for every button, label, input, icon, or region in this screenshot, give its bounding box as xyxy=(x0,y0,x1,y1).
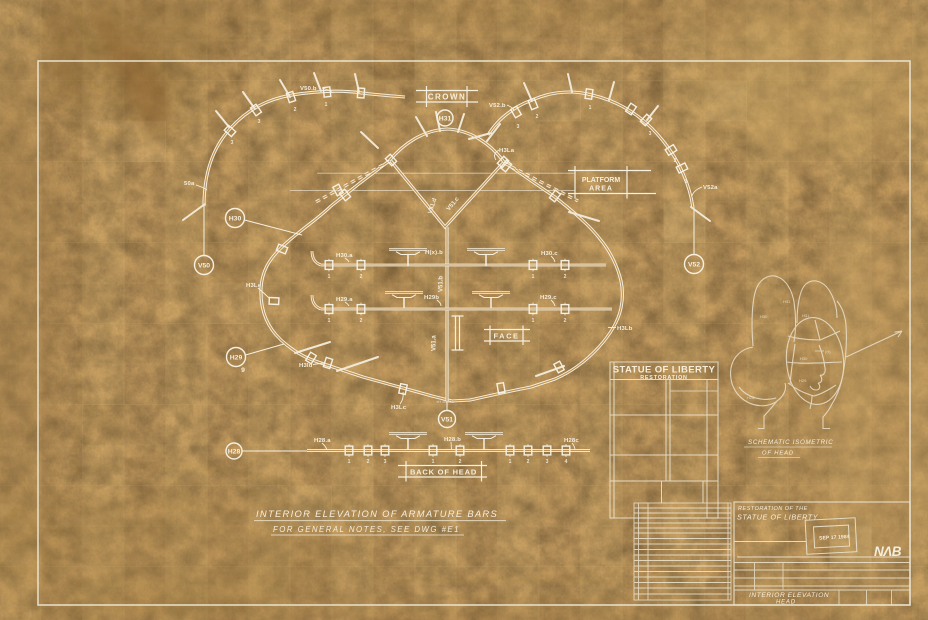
svg-text:(H): (H) xyxy=(825,349,831,354)
svg-text:H31: H31 xyxy=(802,313,810,318)
svg-text:3: 3 xyxy=(258,119,261,125)
svg-text:±H 28 11±: ±H 28 11± xyxy=(436,399,455,404)
svg-text:2: 2 xyxy=(360,318,363,324)
svg-text:V52a: V52a xyxy=(703,185,718,191)
svg-text:H28: H28 xyxy=(747,395,755,400)
svg-text:INTERIOR ELEVATION OF ARMATURE: INTERIOR ELEVATION OF ARMATURE BARS xyxy=(256,508,498,519)
svg-text:H31: H31 xyxy=(439,116,452,123)
svg-text:V51.b: V51.b xyxy=(439,276,445,292)
svg-text:RESTORATION OF THE: RESTORATION OF THE xyxy=(738,506,808,512)
svg-text:3: 3 xyxy=(384,459,387,465)
svg-text:H28c: H28c xyxy=(564,438,579,444)
svg-text:BACK OF HEAD: BACK OF HEAD xyxy=(410,468,477,477)
svg-text:PLATFORM: PLATFORM xyxy=(582,177,621,184)
svg-text:H31: H31 xyxy=(783,299,791,304)
svg-text:3: 3 xyxy=(649,131,652,137)
svg-text:2: 2 xyxy=(536,114,539,120)
svg-text:1: 1 xyxy=(432,459,435,465)
svg-text:V52.b: V52.b xyxy=(489,103,506,109)
svg-text:H29: H29 xyxy=(230,355,243,362)
svg-text:1: 1 xyxy=(348,459,351,465)
svg-text:H29.c: H29.c xyxy=(540,295,557,301)
svg-text:CROWN: CROWN xyxy=(428,93,467,102)
svg-text:RESTORATION: RESTORATION xyxy=(640,375,688,381)
svg-text:H30: H30 xyxy=(229,216,242,223)
svg-text:V51.a: V51.a xyxy=(432,335,438,351)
svg-text:2: 2 xyxy=(294,107,297,113)
svg-text:1: 1 xyxy=(532,318,535,324)
svg-text:9: 9 xyxy=(241,367,245,374)
svg-text:1: 1 xyxy=(509,459,512,465)
svg-text:H3ld: H3ld xyxy=(299,363,313,369)
svg-text:1: 1 xyxy=(325,102,328,108)
svg-text:4: 4 xyxy=(565,459,568,465)
svg-text:1: 1 xyxy=(328,318,331,324)
svg-text:2: 2 xyxy=(527,459,530,465)
svg-text:1: 1 xyxy=(589,105,592,111)
svg-text:H29.a: H29.a xyxy=(336,297,353,303)
svg-text:AREA: AREA xyxy=(589,186,613,193)
svg-text:FOR GENERAL NOTES, SEE DWG #E1: FOR GENERAL NOTES, SEE DWG #E1 xyxy=(273,525,460,534)
svg-text:H30.a: H30.a xyxy=(336,253,353,259)
svg-text:H28.b: H28.b xyxy=(444,437,461,443)
svg-text:2: 2 xyxy=(564,274,567,280)
svg-text:1: 1 xyxy=(328,274,331,280)
svg-text:STATUE OF LIBERTY: STATUE OF LIBERTY xyxy=(737,513,819,522)
svg-text:H3Lb: H3Lb xyxy=(617,326,633,332)
svg-text:V51: V51 xyxy=(441,417,453,424)
svg-text:V52: V52 xyxy=(688,262,700,269)
svg-text:H30: H30 xyxy=(800,356,808,361)
svg-text:V50: V50 xyxy=(198,263,210,270)
svg-text:3: 3 xyxy=(546,459,549,465)
svg-text:V50.b: V50.b xyxy=(300,86,317,92)
svg-text:1: 1 xyxy=(685,179,688,185)
svg-text:3: 3 xyxy=(231,140,234,146)
svg-text:2: 2 xyxy=(459,459,462,465)
svg-text:SCHEMATIC ISOMETRIC: SCHEMATIC ISOMETRIC xyxy=(748,439,833,446)
svg-text:2: 2 xyxy=(360,274,363,280)
svg-text:H3Lc: H3Lc xyxy=(391,405,407,411)
svg-text:2: 2 xyxy=(564,318,567,324)
svg-text:H28: H28 xyxy=(228,449,241,456)
svg-text:FACE: FACE xyxy=(493,332,519,341)
svg-text:OF HEAD: OF HEAD xyxy=(762,451,794,457)
svg-text:INTERIOR ELEVATION: INTERIOR ELEVATION xyxy=(749,592,829,599)
svg-text:H(x).b: H(x).b xyxy=(425,250,443,256)
svg-text:2: 2 xyxy=(674,158,677,164)
svg-text:50a: 50a xyxy=(184,181,195,187)
svg-text:H30: H30 xyxy=(760,314,768,319)
svg-text:NΛB: NΛB xyxy=(874,544,902,559)
svg-text:H29: H29 xyxy=(799,378,807,383)
svg-text:2: 2 xyxy=(367,459,370,465)
svg-text:H3Le: H3Le xyxy=(246,283,262,289)
svg-text:H3La: H3La xyxy=(499,148,515,154)
svg-text:3: 3 xyxy=(517,124,520,130)
svg-text:HEAD: HEAD xyxy=(776,600,796,606)
svg-text:1: 1 xyxy=(532,274,535,280)
svg-text:H30.c: H30.c xyxy=(541,251,558,257)
